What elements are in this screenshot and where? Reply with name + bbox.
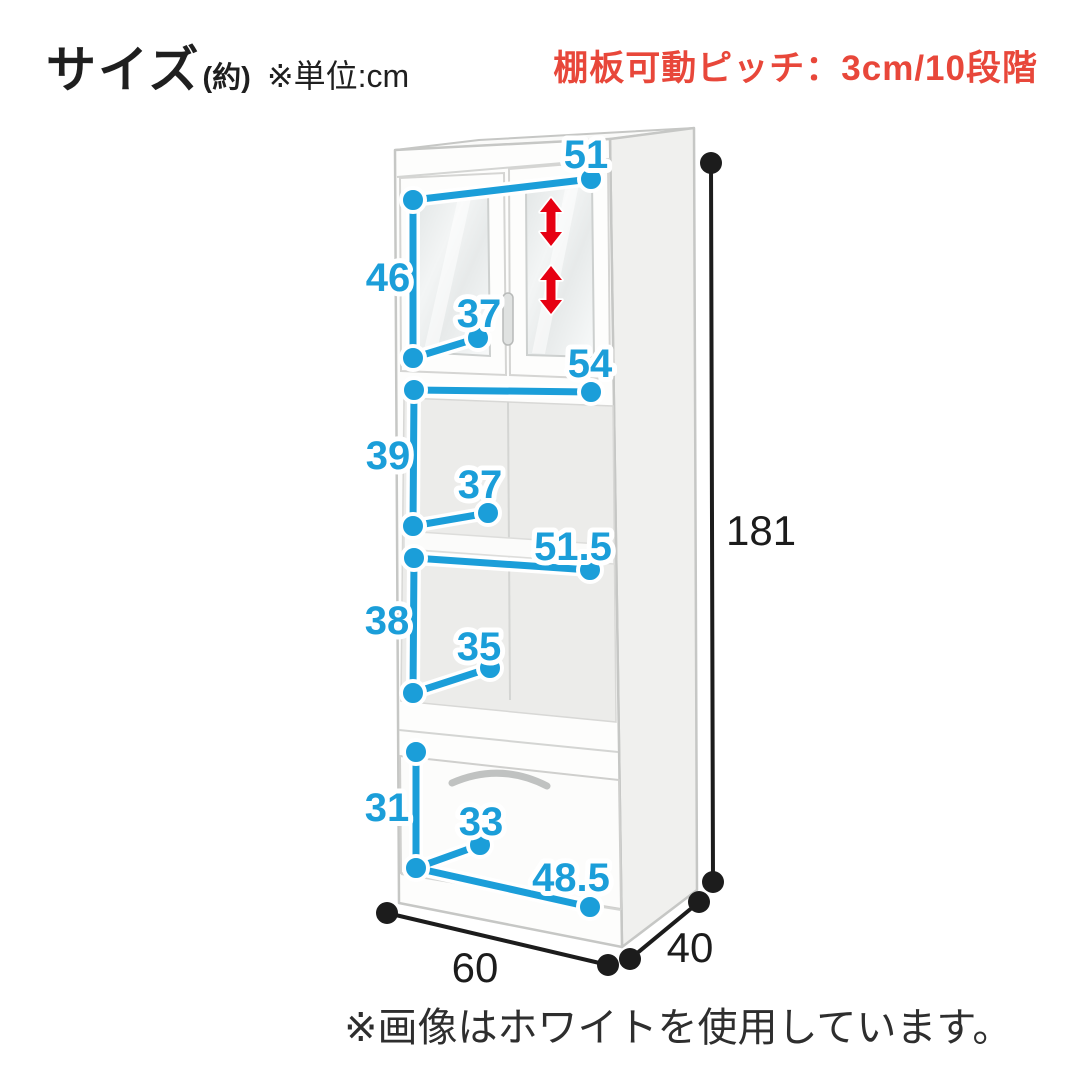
measure-dot <box>401 346 425 370</box>
middle-shelf-height-label: 39 <box>366 434 411 478</box>
measure-dot <box>401 681 425 705</box>
cabinet-side-panel <box>610 128 697 947</box>
cabinet-dimension-diagram: 51 46 37 54 39 37 51.5 38 35 31 33 48.5 … <box>0 0 1080 1076</box>
drawer-width-label: 48.5 <box>532 856 610 900</box>
middle-shelf-depth-label: 37 <box>458 463 503 507</box>
dimension-endpoint-dot <box>688 891 710 913</box>
dimension-endpoint-dot <box>597 954 619 976</box>
measure-dot <box>402 546 426 570</box>
drawer-height-label: 31 <box>365 786 410 830</box>
lower-shelf-width-label: 51.5 <box>534 525 612 569</box>
lower-shelf-height-label: 38 <box>365 599 410 643</box>
upper-door-width-label: 51 <box>564 133 609 177</box>
size-diagram-page: サイズ (約) ※単位:cm 棚板可動ピッチ：3cm/10段階 <box>0 0 1080 1076</box>
overall-height-label: 181 <box>726 507 796 554</box>
dimension-endpoint-dot <box>700 152 722 174</box>
color-usage-note: ※画像はホワイトを使用しています。 <box>344 995 1012 1053</box>
upper-door-height-label: 46 <box>366 256 411 300</box>
overall-width-label: 60 <box>452 944 499 991</box>
measure-dot <box>401 188 425 212</box>
drawer-depth-label: 33 <box>459 800 504 844</box>
lower-shelf-depth-label: 35 <box>457 625 502 669</box>
measure-dot <box>402 378 426 402</box>
measure-dot <box>401 514 425 538</box>
dimension-endpoint-dot <box>619 948 641 970</box>
height-dimension-line <box>711 163 713 882</box>
upper-door-depth-label: 37 <box>457 292 502 336</box>
middle-shelf-width-label: 54 <box>568 342 613 386</box>
dimension-endpoint-dot <box>702 871 724 893</box>
measure-dot <box>404 856 428 880</box>
overall-depth-label: 40 <box>667 924 714 971</box>
measure-dot <box>404 740 428 764</box>
door-handle <box>503 293 513 345</box>
dimension-endpoint-dot <box>376 902 398 924</box>
